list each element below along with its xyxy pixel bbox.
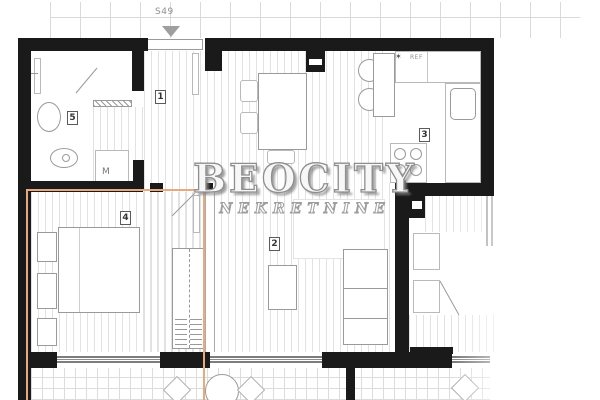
- dining-chair-3: [267, 150, 295, 164]
- entrance-unit-label: S49: [155, 7, 195, 17]
- adjacent-wardrobe-2: [413, 280, 440, 313]
- hallway-wardrobe: [192, 53, 199, 95]
- room-label-living: 2: [269, 237, 280, 251]
- kitchen-bar: [373, 53, 395, 117]
- room-label-hallway: 1: [155, 90, 166, 104]
- floor-plan: M S49 ✶ REF: [0, 0, 600, 400]
- wall-top-right: [205, 38, 494, 51]
- wall-mid-vertical: [395, 183, 409, 353]
- bedroom-living-partition: [205, 192, 215, 352]
- sofa: [343, 249, 388, 345]
- wall-right: [481, 51, 494, 196]
- wall-kitchen-bottom: [397, 183, 494, 196]
- entrance-door: [147, 39, 203, 50]
- burner-3: [394, 164, 406, 176]
- bathroom-door-swing: [76, 68, 97, 93]
- entrance-arrow-icon: [162, 26, 180, 37]
- dining-table: [258, 73, 307, 150]
- sofa-cushion-line-1: [344, 288, 387, 289]
- wall-top-left: [18, 38, 148, 51]
- coffee-table: [268, 265, 297, 310]
- toilet-flush: [62, 154, 70, 162]
- kitchen-sink: [450, 88, 476, 120]
- dining-chair-1: [240, 80, 258, 102]
- wall-bathroom-right-lower: [133, 160, 144, 190]
- bathroom-radiator: [34, 58, 41, 94]
- shaft-kitchen-inner: [309, 59, 322, 65]
- wall-bathroom-right-upper: [132, 51, 144, 91]
- washbasin: [37, 102, 61, 132]
- counter-divider: [427, 52, 428, 82]
- wall-bottom-mid: [322, 352, 452, 368]
- burner-1: [394, 148, 406, 160]
- balcony-divider: [346, 368, 355, 400]
- dining-chair-2: [240, 112, 258, 134]
- room-label-bathroom: 5: [67, 111, 78, 125]
- unit-highlight-outline: [26, 189, 205, 400]
- fade-overlay: [455, 196, 600, 400]
- adjacent-wardrobe-1: [413, 233, 440, 270]
- fridge-label: REF: [410, 54, 423, 61]
- balcony-table: [205, 374, 239, 400]
- shaft-entrance: [205, 51, 222, 71]
- room-label-kitchen: 3: [419, 128, 430, 142]
- bathroom-shelf: [93, 100, 132, 107]
- burner-2: [410, 148, 422, 160]
- kitchen-counter-top: [395, 51, 481, 83]
- fridge-star-icon: ✶: [395, 52, 402, 61]
- sofa-cushion-line-2: [344, 318, 387, 319]
- living-window: [210, 356, 322, 363]
- wall-adjacent-bottom: [410, 347, 453, 354]
- burner-4: [410, 164, 422, 176]
- shaft-adjacent-inner: [412, 201, 422, 209]
- washing-machine-label: M: [102, 167, 110, 177]
- washing-machine: [95, 150, 129, 182]
